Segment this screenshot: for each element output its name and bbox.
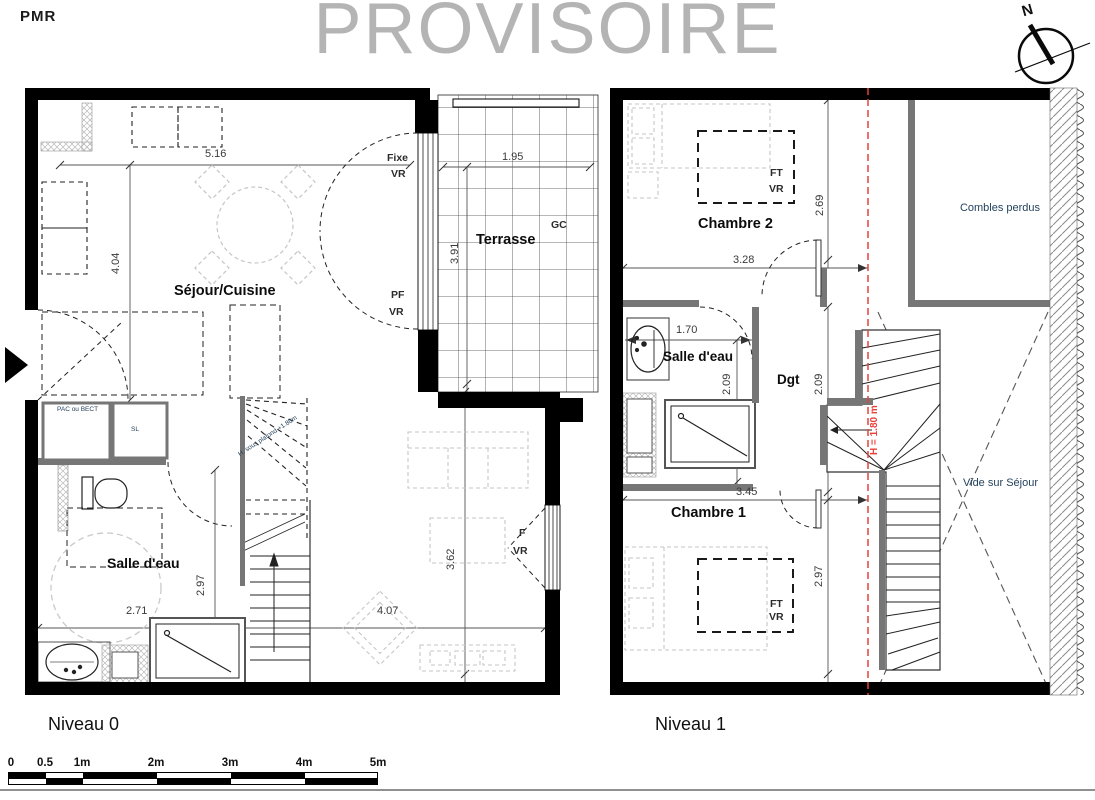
plan1-title: Niveau 1: [655, 714, 726, 735]
dim-sejour-height: 4.04: [110, 253, 122, 274]
roofwindow-ft2-vr-label: VR: [769, 183, 784, 195]
pmr-label: PMR: [20, 8, 56, 25]
dim-terrasse-height: 3.91: [449, 243, 461, 264]
dim-salle-n1-width: 1.70: [676, 324, 697, 336]
dim-dgt-height: 2.09: [813, 374, 825, 395]
scale-tick-4m: 4m: [296, 757, 313, 769]
scale-tick-3m: 3m: [222, 757, 239, 769]
hatched-wall: [1050, 88, 1077, 695]
insulation-band: [1077, 88, 1092, 695]
dim-living-width: 4.07: [377, 605, 398, 617]
window-f-label: F: [519, 527, 525, 539]
dimension-lines-n1: [619, 96, 868, 682]
stairs-n0: [241, 398, 310, 682]
room-sejour-cuisine: Séjour/Cuisine: [174, 283, 276, 299]
dim-salle-height: 2.97: [195, 575, 207, 596]
dim-salle-width: 2.71: [126, 605, 147, 617]
gc-label: GC: [551, 219, 567, 231]
scale-tick-5m: 5m: [370, 757, 387, 769]
height-note-180: H = 1.80 m: [869, 405, 880, 455]
bottom-divider: [0, 789, 1095, 791]
closet-sl-label: SL: [131, 426, 139, 434]
room-dgt: Dgt: [777, 372, 800, 387]
dim-chambre1-height: 2.97: [813, 566, 825, 587]
dim-sejour-width: 5.16: [205, 148, 226, 160]
window-fixe-vr-label: VR: [391, 168, 406, 180]
watermark: PROVISOIRE: [313, 0, 781, 70]
door-pf-label: PF: [391, 289, 404, 301]
north-compass-icon: [1000, 0, 1095, 85]
kitchen-counters: [42, 107, 222, 274]
dim-chambre1-width: 3.45: [736, 486, 757, 498]
room-terrasse: Terrasse: [476, 232, 535, 248]
closet-pac-label: PAC ou BECT: [57, 406, 97, 414]
window-f-vr-label: VR: [513, 545, 528, 557]
walls-n1: [610, 88, 1092, 695]
plan0-title: Niveau 0: [48, 714, 119, 735]
room-chambre1: Chambre 1: [671, 505, 746, 521]
scale-tick-0: 0: [8, 757, 14, 769]
dim-living-height: 3.62: [445, 549, 457, 570]
living-furniture: [343, 432, 528, 671]
floor-plan-sheet: PMR PROVISOIRE N: [0, 0, 1095, 800]
dim-salle-n1-height: 2.09: [721, 374, 733, 395]
entry-arrow-icon: [5, 347, 28, 383]
scale-bar-row-bottom: [8, 778, 378, 785]
dim-terrasse-width: 1.95: [502, 151, 523, 163]
roofwindow-ft2-label: FT: [770, 167, 783, 179]
plan-niveau-0: [0, 86, 600, 704]
scale-tick-05: 0.5: [37, 757, 53, 769]
bedroom-furniture: [625, 104, 770, 650]
roofwindow-ft1-label: FT: [770, 598, 783, 610]
partitions-n1: [623, 100, 1050, 670]
room-combles-perdus: Combles perdus: [955, 202, 1045, 214]
window-fixe-label: Fixe: [387, 152, 408, 164]
dim-chambre2-height: 2.69: [814, 195, 826, 216]
scale-tick-1m: 1m: [74, 757, 91, 769]
room-vide-sur-sejour: Vide sur Séjour: [958, 477, 1043, 489]
roofwindow-ft1-vr-label: VR: [769, 611, 784, 623]
plan-niveau-1: [605, 86, 1095, 704]
room-salle-eau-n0: Salle d'eau: [107, 555, 180, 571]
door-pf-vr-label: VR: [389, 306, 404, 318]
partitions-n0: [38, 103, 245, 586]
room-chambre2: Chambre 2: [698, 216, 773, 232]
bathroom-fixtures-n0: [38, 465, 245, 685]
dim-chambre2-width: 3.28: [733, 254, 754, 266]
dining-table: [195, 165, 315, 285]
scale-tick-2m: 2m: [148, 757, 165, 769]
scale-bar: 0 0.5 1m 2m 3m 4m 5m: [8, 757, 388, 787]
room-salle-eau-n1: Salle d'eau: [663, 349, 733, 364]
